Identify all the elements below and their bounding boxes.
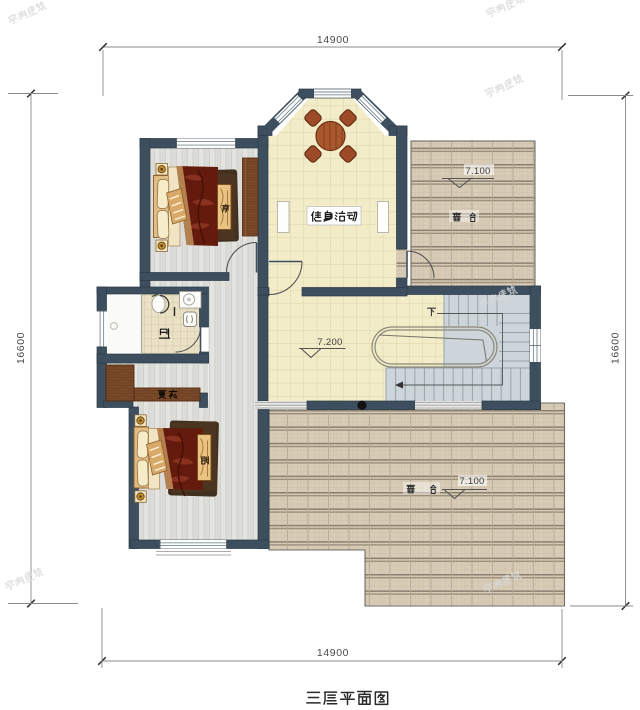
svg-text:7.200: 7.200 — [317, 337, 342, 348]
svg-text:7.100: 7.100 — [459, 476, 484, 487]
svg-text:16600: 16600 — [610, 332, 622, 364]
svg-text:7.100: 7.100 — [465, 166, 490, 177]
svg-text:14900: 14900 — [317, 647, 349, 659]
svg-text:16600: 16600 — [15, 332, 27, 364]
svg-text:14900: 14900 — [317, 34, 349, 46]
